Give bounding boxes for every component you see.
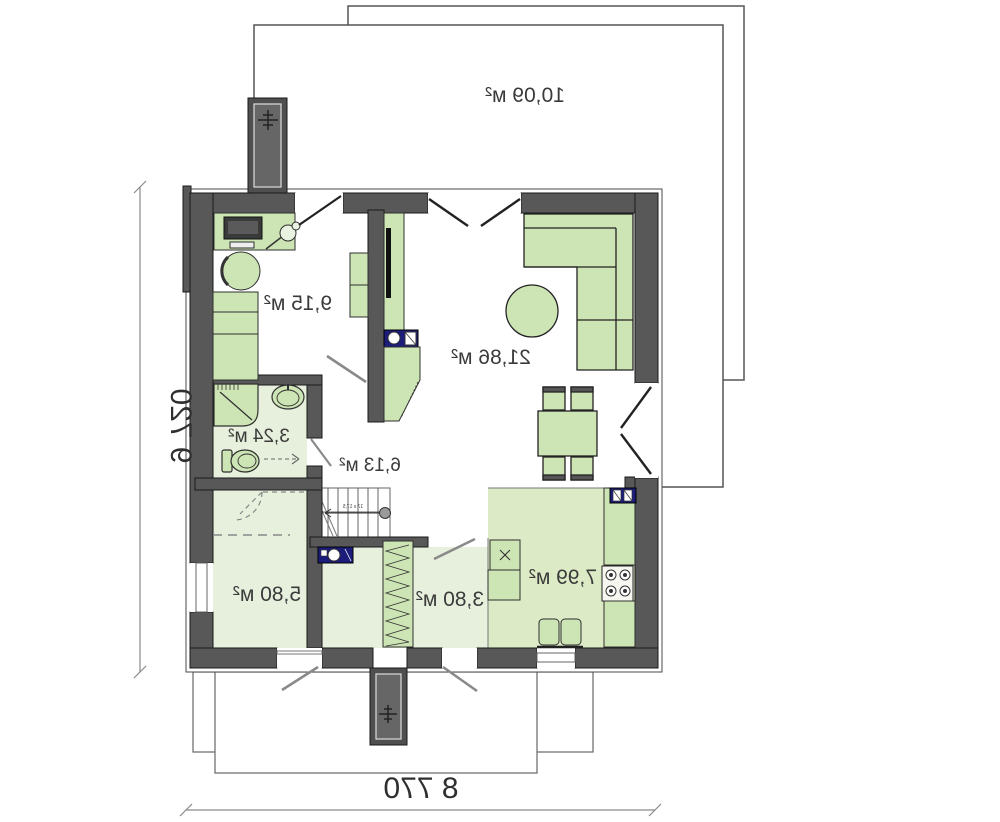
bed [213,292,258,380]
wall-top-middle [343,193,428,213]
area-label-hall: 6,13 м² [339,455,401,477]
dimension-label-width: 8 770 [383,772,458,806]
area-label-living-room: 21,86 м² [451,346,531,370]
wall-right-upper [635,193,658,383]
kitchen-cabinet [488,570,520,600]
door-dining-terrace-gap [635,383,658,478]
wall-bathroom-bottom [195,478,322,490]
area-label-kitchen: 7,99 м² [529,566,597,590]
wall-bathroom-right-b [307,466,322,478]
area-label-bedroom-top: 9,15 м² [264,292,332,316]
stairs-start-dot [380,508,391,519]
staircase [313,488,391,537]
dining-table [538,411,597,456]
wall-bottom-3 [407,648,442,668]
wall-bottom-2 [322,648,373,668]
wall-bedroom-right [307,490,322,648]
area-label-bedroom-bottom: 5,80 м² [233,583,301,607]
bar-sink-bowl [388,332,400,344]
wall-interior-vertical [368,210,384,422]
kitchen-counter-bottom [604,601,635,647]
floor-plan-drawing [0,0,1000,822]
wall-bottom-1 [190,648,277,668]
washing-machine-drum [328,549,340,561]
chimney-bottom [370,668,407,745]
area-label-bathroom: 3,24 м² [228,426,290,448]
floor-plan-canvas: 10,09 м² 9,15 м² 21,86 м² 3,24 м² 6,13 м… [0,0,1000,822]
tv [386,228,391,298]
door-entrance-gap [442,648,477,668]
toilet-bowl [231,450,259,472]
area-label-corridor: 3,80 м² [416,588,484,612]
coffee-table [506,285,558,337]
wall-right-lower [635,478,658,668]
chimney-top [248,98,287,193]
dimension-label-height: 9 720 [163,388,197,463]
area-label-terrace: 10,09 м² [485,84,565,108]
wall-bottom-5 [575,648,658,668]
window-left-frame [196,563,207,612]
keyboard [230,242,254,248]
wall-bottom-4 [477,648,537,668]
door-terrace-double-gap [428,193,521,213]
wall-bathroom-right-a [307,385,322,438]
window-kitchen-frame [537,653,575,662]
wall-left-upper [190,193,213,563]
stairs-note-label: 17 x 17,5 [343,504,364,510]
bedroom-bottom-floor [213,490,307,648]
